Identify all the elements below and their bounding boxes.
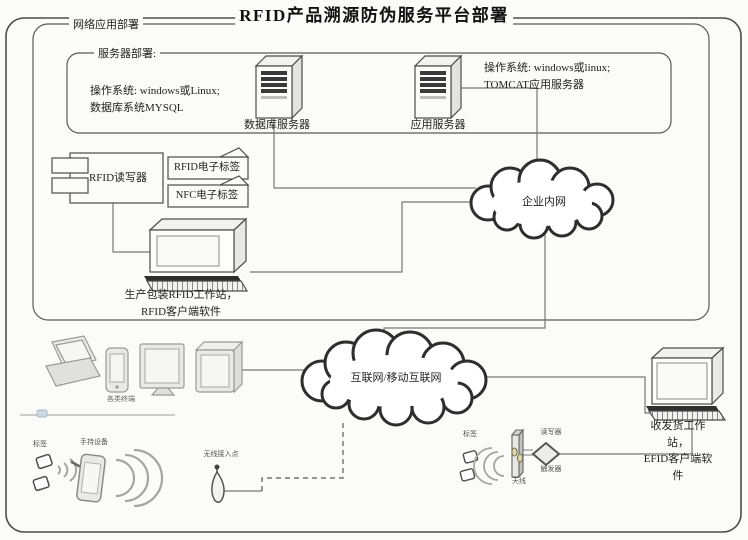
diagram-title: RFID产品溯源防伪服务平台部署 — [235, 3, 513, 29]
nfc-tag-label: NFC电子标签 — [176, 188, 238, 204]
rfid-reader-label: RFID读写器 — [89, 170, 147, 187]
antenna-label: 天线 — [512, 478, 526, 486]
wireless-access-point-icon — [212, 465, 224, 503]
rf-waves-right — [116, 450, 162, 506]
tag-left-label: 标签 — [33, 441, 47, 449]
server-frame-label: 服务器部署: — [94, 46, 160, 63]
divider-chip — [37, 410, 47, 417]
shipping-workstation-label: 收发货工作站， EFID客户端软件 — [643, 418, 713, 484]
database-server-specs: 操作系统: windows或Linux; 数据库系统MYSQL — [90, 83, 220, 116]
application-server-label: 应用服务器 — [411, 117, 466, 134]
crt-monitor-icon — [196, 342, 242, 392]
production-workstation-label: 生产包装RFID工作站， RFID客户端软件 — [124, 287, 237, 320]
application-server-specs: 操作系统: windows或linux; TOMCAT应用服务器 — [484, 60, 610, 93]
shipping-workstation-icon — [646, 348, 725, 420]
database-server-label: 数据库服务器 — [244, 117, 310, 134]
wap-label: 无线接入点 — [204, 451, 239, 459]
lcd-monitor-icon — [140, 344, 184, 395]
portal-connectors — [523, 450, 533, 455]
laptop-icon — [46, 336, 100, 386]
rfid-tag-label: RFID电子标签 — [174, 160, 240, 176]
database-server-icon — [256, 56, 302, 118]
portal-reader-icon — [533, 443, 559, 465]
phone-icon — [106, 348, 128, 392]
tag-chips-right — [460, 450, 478, 481]
portal-reader-label: 读写器 — [541, 429, 562, 437]
deployment-diagram: RFID产品溯源防伪服务平台部署 网络应用部署 服务器部署: 操作系统: win… — [0, 0, 748, 540]
diagram-canvas — [0, 0, 748, 540]
portal-antenna-icon — [512, 430, 523, 477]
production-workstation-icon — [144, 219, 247, 291]
trigger-label: 触发器 — [541, 466, 562, 474]
terminals-label: 各类终端 — [107, 394, 135, 405]
network-frame-label: 网络应用部署 — [69, 17, 143, 34]
intranet-cloud-label: 企业内网 — [522, 194, 566, 211]
internet-cloud-label: 互联网/移动互联网 — [350, 370, 441, 387]
tag-chips-left — [33, 454, 53, 491]
application-server-icon — [415, 56, 461, 118]
rf-waves-portal — [474, 448, 504, 484]
tag-right-label: 标签 — [463, 431, 477, 439]
handheld-label: 手持设备 — [80, 439, 108, 447]
